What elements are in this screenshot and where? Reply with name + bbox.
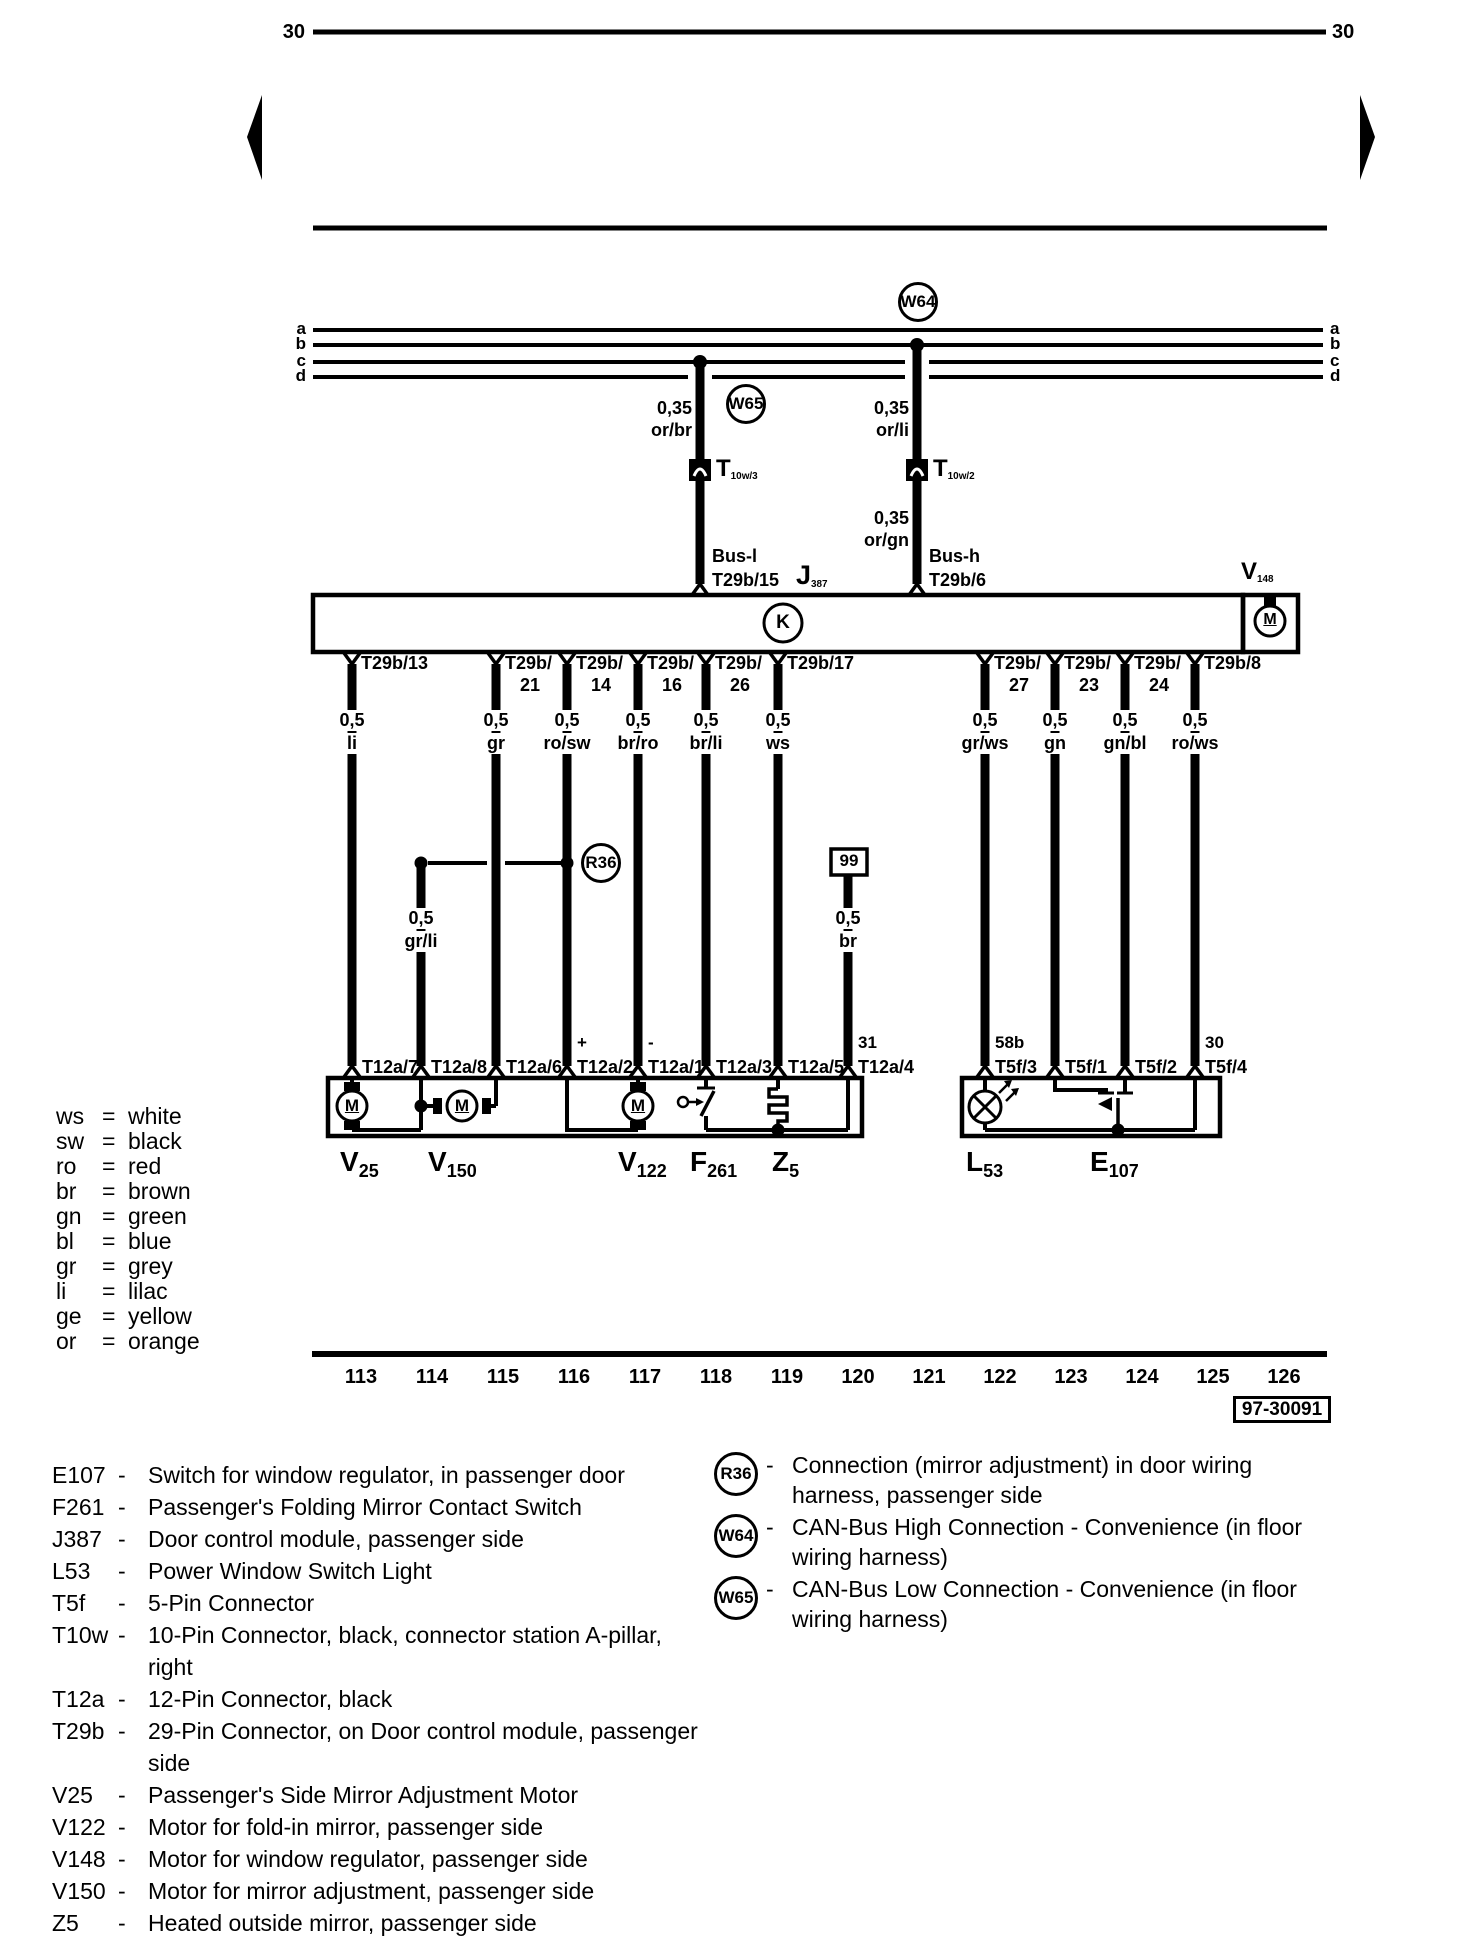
equals-sign: =	[102, 1304, 128, 1329]
wire-gauge: 0,35	[829, 508, 909, 529]
legend-row: V122 - Motor for fold-in mirror, passeng…	[52, 1811, 712, 1843]
color-code-row: li = lilac	[56, 1279, 200, 1304]
junction-dot	[910, 338, 924, 352]
v148-label: V148	[1241, 558, 1274, 586]
legend-desc: Connection (mirror adjustment) in door w…	[792, 1450, 1314, 1510]
v25-motor-letter: M	[345, 1096, 359, 1116]
wire-color: gr	[484, 733, 508, 754]
wire-color: gn	[1041, 733, 1069, 754]
pin-prefix: -	[648, 1033, 654, 1053]
bus-h-pin-label: T29b/6	[929, 570, 986, 591]
pin-prefix: 58b	[995, 1033, 1024, 1053]
k-letter: K	[776, 612, 790, 634]
legend-desc: Power Window Switch Light	[148, 1555, 712, 1587]
color-name: green	[128, 1204, 200, 1229]
color-name: blue	[128, 1229, 200, 1254]
pin-label: T12a/5	[788, 1057, 844, 1078]
legend-dash: -	[118, 1715, 148, 1779]
next-page-arrow-icon	[1360, 95, 1375, 180]
pin-label: T5f/3	[995, 1057, 1037, 1078]
wire-color: li	[344, 733, 360, 754]
pin-label-line2: 14	[591, 675, 611, 696]
equals-sign: =	[102, 1104, 128, 1129]
legend-circled-key: R36	[714, 1452, 758, 1496]
legend-row: T12a - 12-Pin Connector, black	[52, 1683, 712, 1715]
junction-dot	[693, 355, 707, 369]
legend-dash: -	[118, 1459, 148, 1491]
pin-prefix: 30	[1205, 1033, 1224, 1053]
legend-key: V150	[52, 1875, 118, 1907]
legend-key: F261	[52, 1491, 118, 1523]
pin-label-line2: 27	[1009, 675, 1029, 696]
legend-desc: Motor for mirror adjustment, passenger s…	[148, 1875, 712, 1907]
z5-heater-icon	[769, 1078, 787, 1130]
legend-key: T5f	[52, 1587, 118, 1619]
bus-l-label: Bus-l	[712, 546, 757, 567]
legend-dash: -	[118, 1555, 148, 1587]
legend-dash: -	[118, 1811, 148, 1843]
v148-motor-letter: M	[1263, 611, 1276, 629]
pin-label-line2: 26	[730, 675, 750, 696]
legend-dash: -	[118, 1683, 148, 1715]
legend-dash: -	[766, 1574, 792, 1634]
legend-key: T12a	[52, 1683, 118, 1715]
v150-motor-letter: M	[455, 1096, 469, 1116]
color-abbr: ws	[56, 1104, 102, 1129]
color-code-row: gr = grey	[56, 1254, 200, 1279]
legend-circled-key: W65	[714, 1576, 758, 1620]
pin-label: T29b/	[994, 653, 1041, 674]
legend-dash: -	[766, 1450, 792, 1510]
legend-key: T10w	[52, 1619, 118, 1683]
legend-row: V148 - Motor for window regulator, passe…	[52, 1843, 712, 1875]
pin-label: T12a/1	[648, 1057, 704, 1078]
terminal-30-right: 30	[1332, 21, 1354, 44]
wire-gauge: 0,5	[1179, 710, 1210, 731]
color-name: black	[128, 1129, 200, 1154]
color-code-row: sw = black	[56, 1129, 200, 1154]
f261-switch-icon	[678, 1078, 848, 1137]
color-name: red	[128, 1154, 200, 1179]
wire-color: or/gn	[829, 530, 909, 551]
wire-gauge: 0,5	[832, 908, 863, 929]
color-code-row: ro = red	[56, 1154, 200, 1179]
color-code-row: gn = green	[56, 1204, 200, 1229]
color-abbr: bl	[56, 1229, 102, 1254]
equals-sign: =	[102, 1179, 128, 1204]
legend-desc: Passenger's Side Mirror Adjustment Motor	[148, 1779, 712, 1811]
legend-key: E107	[52, 1459, 118, 1491]
v122-motor-letter: M	[631, 1096, 645, 1116]
wire-gauge: 0,5	[405, 908, 436, 929]
color-name: grey	[128, 1254, 200, 1279]
legend-desc: CAN-Bus Low Connection - Convenience (in…	[792, 1574, 1314, 1634]
legend-key: Z5	[52, 1907, 118, 1939]
legend-row: T5f - 5-Pin Connector	[52, 1587, 712, 1619]
pin-prefix: +	[577, 1033, 587, 1053]
pin-label: T12a/4	[858, 1057, 914, 1078]
pin-label-line2: 23	[1079, 675, 1099, 696]
color-code-row: br = brown	[56, 1179, 200, 1204]
legend-desc: 12-Pin Connector, black	[148, 1683, 712, 1715]
legend-dash: -	[118, 1523, 148, 1555]
legend-dash: -	[118, 1875, 148, 1907]
legend-row: Z5 - Heated outside mirror, passenger si…	[52, 1907, 712, 1939]
legend-row: T10w - 10-Pin Connector, black, connecto…	[52, 1619, 712, 1683]
legend-desc: 10-Pin Connector, black, connector stati…	[148, 1619, 712, 1683]
legend-row: R36 - Connection (mirror adjustment) in …	[714, 1450, 1314, 1510]
color-code-legend: ws = white sw = black ro = red br = brow…	[56, 1104, 200, 1354]
pin-label: T29b/13	[361, 653, 428, 674]
color-abbr: gn	[56, 1204, 102, 1229]
pin-label: T12a/8	[431, 1057, 487, 1078]
w64-callout: W64	[898, 282, 938, 322]
color-abbr: ro	[56, 1154, 102, 1179]
wire-gauge: 0,5	[969, 710, 1000, 731]
equals-sign: =	[102, 1229, 128, 1254]
pin-label: T29b/8	[1204, 653, 1261, 674]
legend-row: J387 - Door control module, passenger si…	[52, 1523, 712, 1555]
legend-dash: -	[118, 1587, 148, 1619]
wire-gauge: 0,35	[829, 398, 909, 419]
color-code-row: or = orange	[56, 1329, 200, 1354]
wire-color: or/br	[612, 420, 692, 441]
color-code-row: ws = white	[56, 1104, 200, 1129]
wire-color: or/li	[829, 420, 909, 441]
legend-desc: CAN-Bus High Connection - Convenience (i…	[792, 1512, 1314, 1572]
color-abbr: br	[56, 1179, 102, 1204]
legend-desc: Door control module, passenger side	[148, 1523, 712, 1555]
legend-row: F261 - Passenger's Folding Mirror Contac…	[52, 1491, 712, 1523]
wire-gauge: 0,5	[336, 710, 367, 731]
legend-key: J387	[52, 1523, 118, 1555]
wire-gauge: 0,5	[480, 710, 511, 731]
legend-row: V150 - Motor for mirror adjustment, pass…	[52, 1875, 712, 1907]
wire-gauge: 0,5	[690, 710, 721, 731]
color-code-row: ge = yellow	[56, 1304, 200, 1329]
pin-label: T12a/3	[716, 1057, 772, 1078]
wire-gauge: 0,5	[622, 710, 653, 731]
legend-row: E107 - Switch for window regulator, in p…	[52, 1459, 712, 1491]
ground-point-id: 99	[840, 851, 859, 871]
legend-circled-key: W64	[714, 1514, 758, 1558]
wire-color: ro/ws	[1168, 733, 1221, 754]
pin-label: T12a/2	[577, 1057, 633, 1078]
wire-gauge: 0,5	[1039, 710, 1070, 731]
l53-lamp-icon	[969, 1078, 1195, 1137]
legend-dash: -	[118, 1843, 148, 1875]
pin-label: T29b/17	[787, 653, 854, 674]
terminal-30-left: 30	[257, 21, 305, 44]
color-abbr: gr	[56, 1254, 102, 1279]
t10w3-label: T10w/3	[716, 455, 758, 483]
wire-gauge: 0,5	[551, 710, 582, 731]
equals-sign: =	[102, 1279, 128, 1304]
j387-label: J387	[796, 560, 828, 591]
pin-label: T29b/	[647, 653, 694, 674]
bus-l-pin-label: T29b/15	[712, 570, 779, 591]
legend-desc: Passenger's Folding Mirror Contact Switc…	[148, 1491, 712, 1523]
legend-row: V25 - Passenger's Side Mirror Adjustment…	[52, 1779, 712, 1811]
bus-h-label: Bus-h	[929, 546, 980, 567]
legend-desc: 5-Pin Connector	[148, 1587, 712, 1619]
diagram-number-plate: 97-30091	[1233, 1396, 1331, 1423]
color-abbr: sw	[56, 1129, 102, 1154]
wire-color: ws	[763, 733, 793, 754]
pin-label: T29b/	[576, 653, 623, 674]
legend-key: V148	[52, 1843, 118, 1875]
pin-label-line2: 21	[520, 675, 540, 696]
pin-label: T5f/4	[1205, 1057, 1247, 1078]
pin-label: T29b/	[505, 653, 552, 674]
color-name: orange	[128, 1329, 200, 1354]
wire-color: ro/sw	[540, 733, 593, 754]
wire-color: br/li	[686, 733, 725, 754]
equals-sign: =	[102, 1154, 128, 1179]
w65-callout: W65	[726, 384, 766, 424]
legend-dash: -	[766, 1512, 792, 1572]
wire-color: gr/li	[401, 931, 440, 952]
wire-gauge: 0,5	[1109, 710, 1140, 731]
color-name: yellow	[128, 1304, 200, 1329]
legend-key: L53	[52, 1555, 118, 1587]
legend-desc: Switch for window regulator, in passenge…	[148, 1459, 712, 1491]
color-abbr: li	[56, 1279, 102, 1304]
legend-dash: -	[118, 1907, 148, 1939]
pin-label: T12a/6	[506, 1057, 562, 1078]
component-legend-right: R36 - Connection (mirror adjustment) in …	[714, 1450, 1314, 1636]
wire-gauge: 0,35	[612, 398, 692, 419]
pin-label: T5f/2	[1135, 1057, 1177, 1078]
color-name: white	[128, 1104, 200, 1129]
legend-row: W65 - CAN-Bus Low Connection - Convenien…	[714, 1574, 1314, 1634]
legend-desc: 29-Pin Connector, on Door control module…	[148, 1715, 712, 1779]
legend-row: L53 - Power Window Switch Light	[52, 1555, 712, 1587]
color-abbr: or	[56, 1329, 102, 1354]
t10w2-label: T10w/2	[933, 455, 975, 483]
r36-callout: R36	[581, 843, 621, 883]
legend-desc: Motor for fold-in mirror, passenger side	[148, 1811, 712, 1843]
wire-color: br	[836, 931, 860, 952]
legend-key: V25	[52, 1779, 118, 1811]
pin-prefix: 31	[858, 1033, 877, 1053]
pin-label: T29b/	[1134, 653, 1181, 674]
pin-label: T12a/7	[362, 1057, 418, 1078]
pin-label: T5f/1	[1065, 1057, 1107, 1078]
pin-label: T29b/	[715, 653, 762, 674]
equals-sign: =	[102, 1329, 128, 1354]
legend-dash: -	[118, 1779, 148, 1811]
wire-color: br/ro	[614, 733, 661, 754]
legend-desc: Heated outside mirror, passenger side	[148, 1907, 712, 1939]
rail-d-right: d	[1330, 366, 1340, 386]
pin-label-line2: 16	[662, 675, 682, 696]
rail-d-left: d	[276, 366, 306, 386]
wiring-diagram-page: 30 30 a b c d a b c d W64 W65 R36 0,35 o…	[0, 0, 1472, 1946]
color-code-row: bl = blue	[56, 1229, 200, 1254]
pin-label: T29b/	[1064, 653, 1111, 674]
legend-row: T29b - 29-Pin Connector, on Door control…	[52, 1715, 712, 1779]
legend-row: W64 - CAN-Bus High Connection - Convenie…	[714, 1512, 1314, 1572]
wire-color: gn/bl	[1101, 733, 1150, 754]
pin-label-line2: 24	[1149, 675, 1169, 696]
legend-desc: Motor for window regulator, passenger si…	[148, 1843, 712, 1875]
legend-key: V122	[52, 1811, 118, 1843]
wire-gauge: 0,5	[762, 710, 793, 731]
component-legend-left: E107 - Switch for window regulator, in p…	[52, 1459, 712, 1939]
color-abbr: ge	[56, 1304, 102, 1329]
wire-color: gr/ws	[958, 733, 1011, 754]
color-name: lilac	[128, 1279, 200, 1304]
color-name: brown	[128, 1179, 200, 1204]
equals-sign: =	[102, 1204, 128, 1229]
legend-key: T29b	[52, 1715, 118, 1779]
equals-sign: =	[102, 1254, 128, 1279]
can-bus-rails	[313, 330, 1323, 377]
legend-dash: -	[118, 1491, 148, 1523]
legend-dash: -	[118, 1619, 148, 1683]
prev-page-arrow-icon	[247, 95, 262, 180]
e107-switch-icon	[1055, 1078, 1133, 1130]
equals-sign: =	[102, 1129, 128, 1154]
